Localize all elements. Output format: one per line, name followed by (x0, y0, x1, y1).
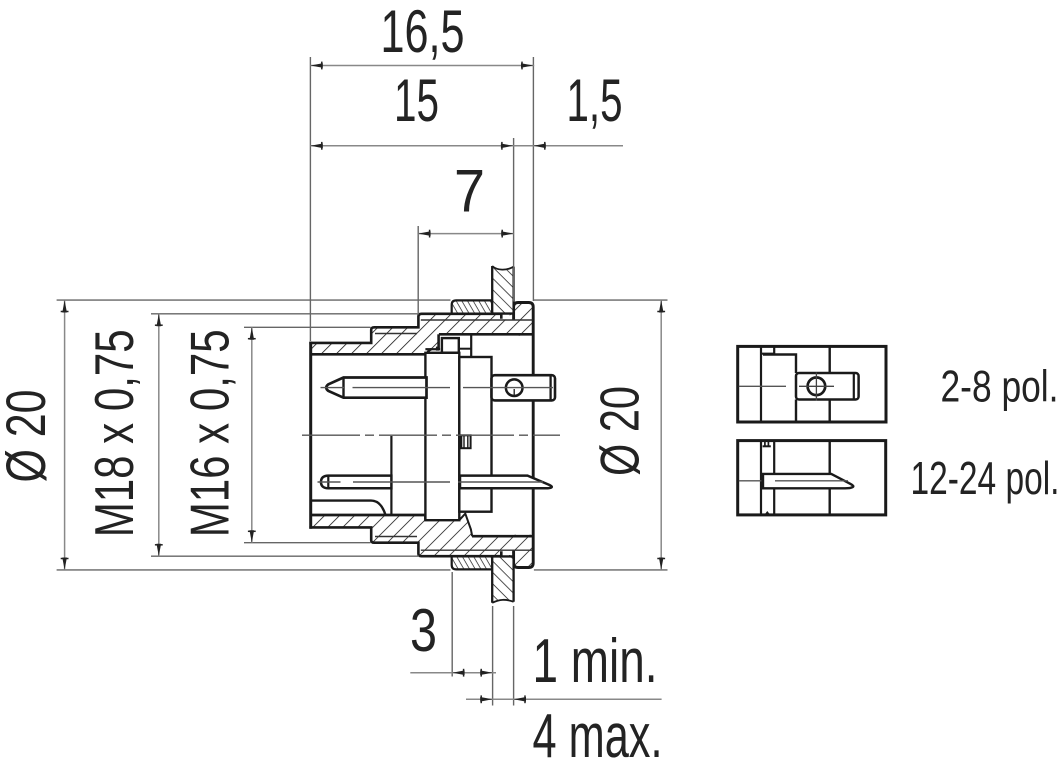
svg-text:Ø 20: Ø 20 (0, 390, 57, 483)
svg-text:7: 7 (454, 158, 485, 225)
svg-text:Ø 20: Ø 20 (589, 386, 651, 476)
svg-text:2-8 pol.: 2-8 pol. (941, 362, 1057, 411)
svg-text:12-24 pol.: 12-24 pol. (911, 452, 1057, 504)
svg-text:4 max.: 4 max. (533, 702, 663, 762)
svg-text:M16 x 0,75: M16 x 0,75 (179, 329, 241, 537)
svg-text:M18 x 0,75: M18 x 0,75 (83, 329, 145, 537)
svg-text:15: 15 (394, 67, 439, 134)
svg-text:1 min.: 1 min. (533, 627, 658, 696)
svg-text:3: 3 (410, 597, 437, 664)
svg-text:16,5: 16,5 (381, 0, 465, 65)
svg-text:1,5: 1,5 (567, 67, 623, 134)
